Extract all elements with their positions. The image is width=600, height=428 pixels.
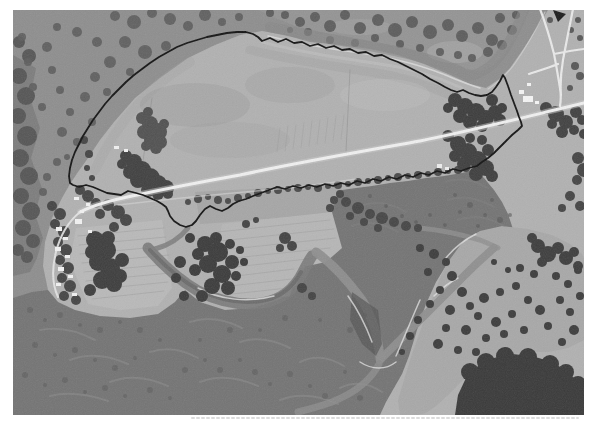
aerial-photo bbox=[10, 8, 591, 415]
figure bbox=[0, 0, 600, 428]
photo-grain bbox=[13, 10, 584, 415]
aerial-photo-svg bbox=[0, 0, 600, 428]
